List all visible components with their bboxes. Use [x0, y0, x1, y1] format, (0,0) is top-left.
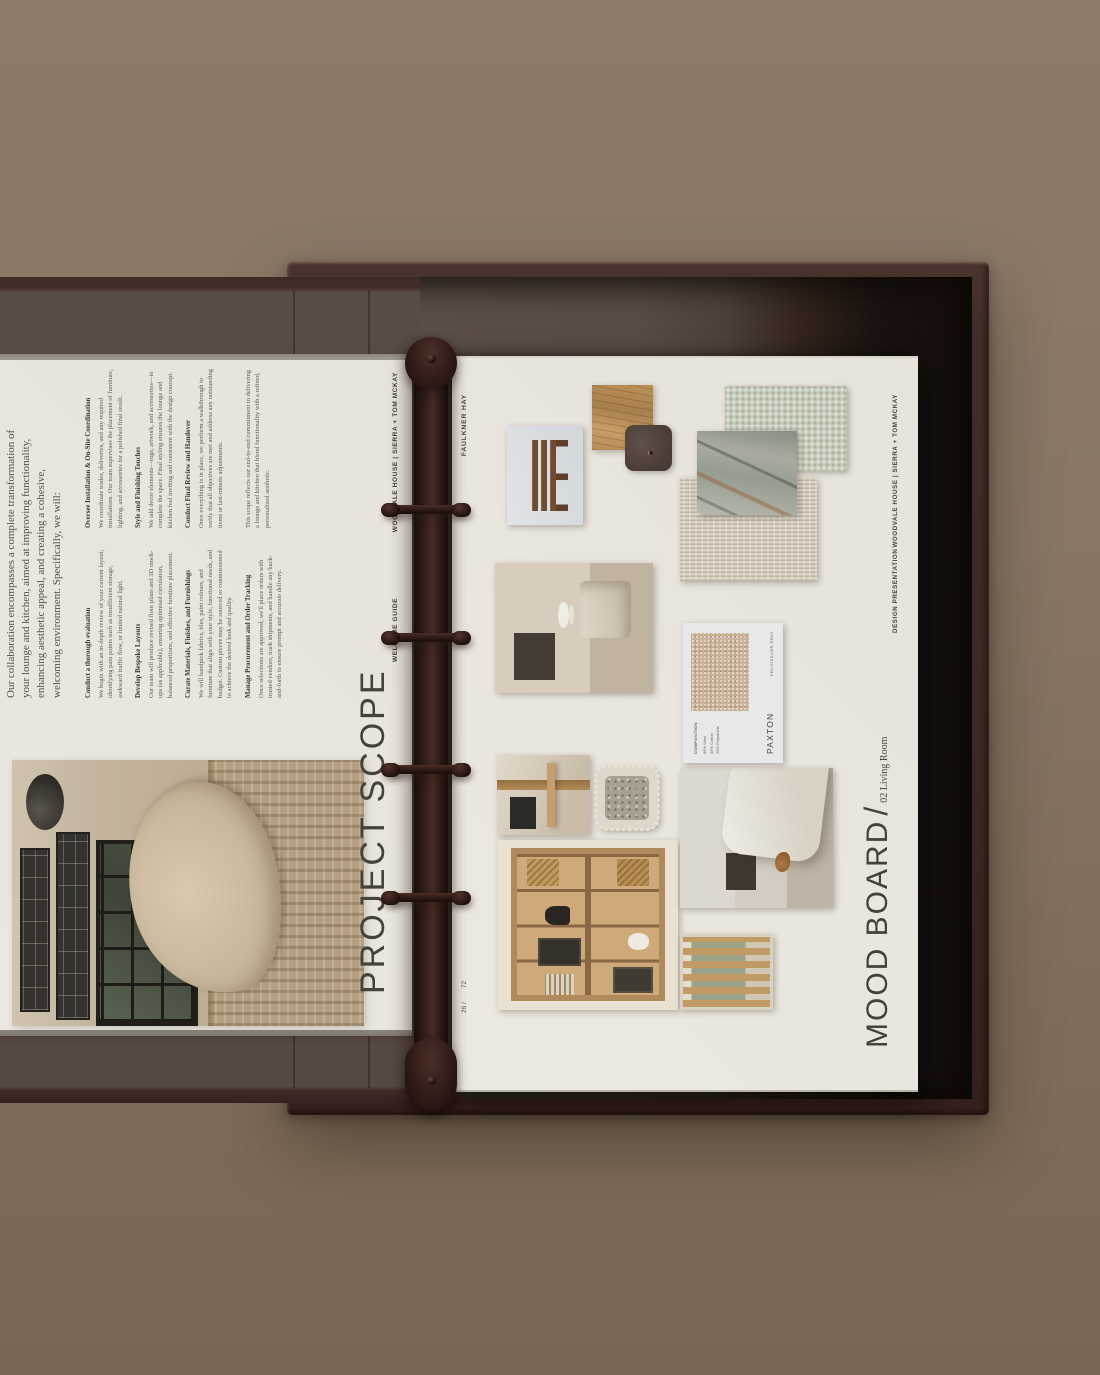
tray-stone-center	[605, 776, 649, 820]
project-scope-intro: Our collaboration encompasses a complete…	[4, 426, 65, 698]
project-scope-blocks: Conduct a thorough evaluation We begin w…	[84, 368, 285, 698]
page-number-current: 26 /	[461, 1002, 468, 1013]
scope-block-styling: Style and Finishing Touches We add decor…	[134, 368, 175, 528]
page-number: 26 /72	[461, 981, 468, 1013]
scope-block-body: We coordinate trades, deliveries, and an…	[97, 368, 125, 528]
photo-framed-art	[613, 967, 653, 993]
bench-legs	[556, 440, 568, 511]
moodboard-photo-shelving-unit	[498, 840, 678, 1010]
photo-dark-artwork	[514, 633, 555, 680]
moodboard-scalloped-travertine-tray	[595, 766, 659, 830]
moodboard-photo-walnut-bench	[507, 426, 583, 525]
bench-slats	[530, 440, 556, 511]
photo-camera-object	[545, 906, 570, 925]
mood-board-title-row: MOOD BOARD / 02 Living Room	[858, 737, 895, 1048]
footer-design-presentation: DESIGN PRESENTATION	[892, 549, 899, 633]
photo-wood-shelf	[547, 763, 554, 827]
scope-block-closing: This scope reflects our end-to-end commi…	[244, 368, 285, 528]
binder-ring-2	[388, 633, 464, 642]
footer-project-name: WOODVALE HOUSE | SIERRA + TOM MCKAY	[892, 394, 899, 548]
photo-book-stack	[545, 974, 574, 994]
moodboard-photo-hall-detail	[497, 755, 590, 835]
photo-skylight-1	[20, 848, 50, 1012]
page-subtitle-living-room: 02 Living Room	[879, 737, 890, 803]
binder-ring-4	[388, 893, 464, 902]
photo-skylight-2	[56, 832, 90, 1020]
composition-line: 20% Polyamide	[715, 714, 722, 754]
binder-ring-1	[388, 505, 464, 514]
footer-welcome-guide: WELCOME GUIDE	[392, 598, 399, 662]
spine-cap-top	[405, 337, 457, 389]
scope-block-heading: Conduct a thorough evaluation	[84, 548, 94, 698]
scope-block-heading: Curate Materials, Finishes, and Furnishi…	[184, 548, 194, 698]
fabric-colorway-code: FELIX/SILVER GRAY	[769, 631, 774, 676]
scope-block-heading: Develop Bespoke Layouts	[134, 548, 144, 698]
photo-mushroom-lamp	[558, 602, 569, 628]
scope-block-body: We will handpick fabrics, tiles, paint c…	[197, 548, 235, 698]
scope-block-heading: Oversee Installation & On-Site Coordinat…	[84, 368, 94, 528]
scope-block-body: Once selections are approved, we'll plac…	[257, 548, 285, 698]
spine-cap-bottom	[405, 1038, 457, 1110]
brand-name: FAULKNER HAY	[461, 394, 468, 456]
photo-framed-art	[538, 938, 582, 966]
scope-block-body: Our team will produce revised floor plan…	[147, 548, 175, 698]
scope-block-body: We add decor elements—rugs, artwork, and…	[147, 368, 175, 528]
title-slash: /	[858, 807, 895, 816]
photo-dark-panel	[510, 797, 536, 829]
photo-wall-art	[726, 853, 757, 889]
spine-rivet-top	[427, 354, 436, 363]
photo-oval-mirror	[26, 774, 64, 830]
photo-woven-basket	[527, 859, 559, 886]
scope-block-review: Conduct Final Review and Handover Once e…	[184, 368, 235, 528]
scope-block-body: This scope reflects our end-to-end commi…	[244, 368, 272, 528]
scope-block-installation: Oversee Installation & On-Site Coordinat…	[84, 368, 125, 528]
moodboard-photo-living-room	[680, 768, 833, 908]
page-title-project-scope: PROJECT SCOPE	[354, 668, 393, 994]
moodboard-marble-swatch	[697, 431, 797, 515]
right-page-mood-board: 26 /72 FAULKNER HAY	[452, 356, 918, 1092]
fabric-composition: COMPOSITION 45% Wool 35% Cotton 20% Poly…	[693, 714, 722, 754]
scope-block-materials: Curate Materials, Finishes, and Furnishi…	[184, 548, 235, 698]
scope-block-body: Once everything is in place, we perform …	[197, 368, 225, 528]
binder-mockup-scene: Our collaboration encompasses a complete…	[0, 0, 1100, 1375]
moodboard-fabric-sample-card: COMPOSITION 45% Wool 35% Cotton 20% Poly…	[683, 623, 783, 763]
page-number-total: 72	[461, 981, 468, 988]
scope-block-procurement: Manage Procurement and Order Tracking On…	[244, 548, 285, 698]
fabric-swatch-image	[691, 633, 749, 711]
composition-line: 35% Cotton	[709, 714, 716, 754]
scope-block-body: We begin with an in-depth review of your…	[97, 548, 125, 698]
photo-white-sofa	[720, 768, 830, 863]
composition-line: 45% Wool	[702, 714, 709, 754]
scope-block-heading: Conduct Final Review and Handover	[184, 368, 194, 528]
scope-block-heading: Style and Finishing Touches	[134, 368, 144, 528]
binder-ring-3	[388, 765, 464, 774]
spine-rivet-bottom	[427, 1076, 436, 1085]
moodboard-photo-slatted-window	[680, 934, 773, 1010]
left-page-project-scope: Our collaboration encompasses a complete…	[0, 360, 412, 1030]
page-title-mood-board: MOOD BOARD	[861, 820, 895, 1048]
scope-block-evaluation: Conduct a thorough evaluation We begin w…	[84, 548, 125, 698]
photo-dried-plant	[775, 852, 790, 872]
scope-block-heading: Manage Procurement and Order Tracking	[244, 548, 254, 698]
lounge-interior-photo	[12, 760, 364, 1026]
composition-label: COMPOSITION	[693, 714, 700, 754]
fabric-name: PAXTON	[765, 713, 775, 754]
moodboard-photo-armchair-vignette	[495, 563, 653, 693]
binder-spine	[414, 341, 448, 1109]
photo-wood-post	[497, 780, 590, 790]
scope-block-layouts: Develop Bespoke Layouts Our team will pr…	[134, 548, 175, 698]
photo-boucle-side-table	[580, 581, 631, 638]
photo-woven-basket	[617, 859, 649, 886]
moodboard-dark-leather-swatch	[625, 425, 672, 471]
